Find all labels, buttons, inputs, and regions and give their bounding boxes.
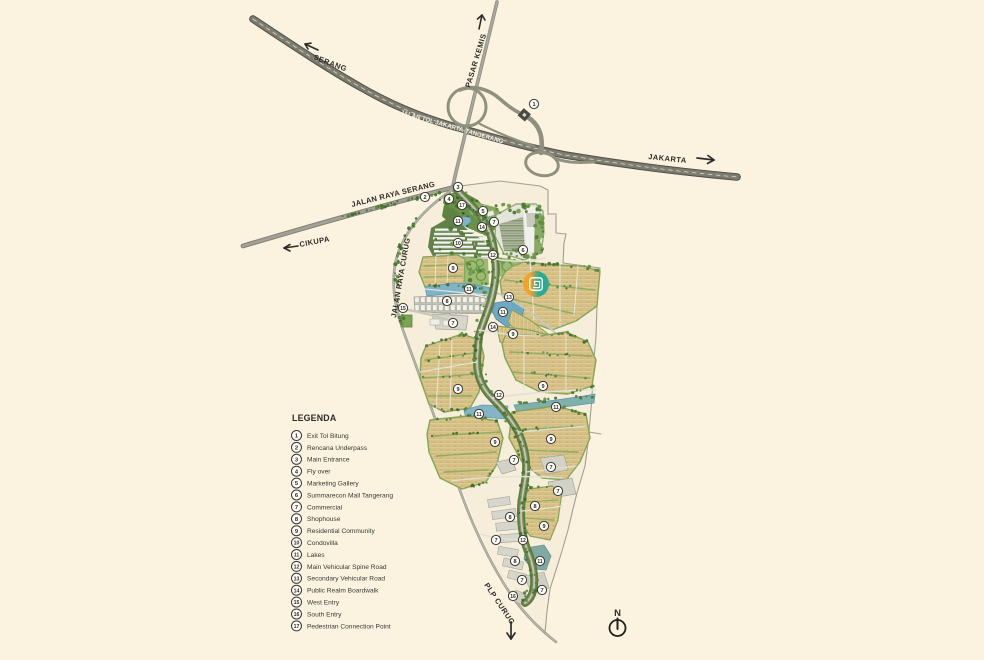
svg-text:9: 9 (493, 440, 496, 446)
svg-text:3: 3 (456, 185, 459, 191)
svg-text:13: 13 (294, 576, 300, 582)
svg-text:Rencana Underpass: Rencana Underpass (307, 445, 368, 452)
svg-text:14: 14 (479, 225, 485, 231)
svg-text:11: 11 (553, 405, 559, 411)
svg-text:7: 7 (520, 578, 523, 584)
svg-text:15: 15 (294, 600, 300, 606)
svg-text:West Entry: West Entry (307, 600, 340, 607)
svg-text:Shophouse: Shophouse (307, 516, 341, 523)
svg-text:13: 13 (506, 295, 512, 301)
svg-text:Main Entrance: Main Entrance (307, 457, 350, 464)
svg-text:Commercial: Commercial (307, 504, 343, 511)
svg-text:8: 8 (533, 504, 536, 510)
svg-text:7: 7 (295, 505, 298, 511)
svg-text:11: 11 (537, 559, 543, 565)
svg-text:7: 7 (451, 321, 454, 327)
svg-text:9: 9 (511, 332, 514, 338)
svg-text:7: 7 (492, 220, 495, 226)
svg-text:Condovilla: Condovilla (307, 540, 338, 547)
svg-text:7: 7 (512, 458, 515, 464)
svg-text:Exit Tol Bitung: Exit Tol Bitung (307, 433, 349, 440)
svg-text:9: 9 (541, 384, 544, 390)
svg-text:Main Vehicular Spine Road: Main Vehicular Spine Road (307, 564, 387, 571)
svg-text:17: 17 (294, 624, 300, 630)
svg-text:16: 16 (510, 594, 516, 600)
svg-text:9: 9 (456, 387, 459, 393)
svg-text:South Entry: South Entry (307, 611, 342, 618)
svg-text:5: 5 (481, 209, 484, 215)
svg-text:9: 9 (451, 266, 454, 272)
svg-text:15: 15 (400, 306, 406, 312)
svg-text:Residential Community: Residential Community (307, 528, 375, 535)
svg-text:7: 7 (556, 489, 559, 495)
svg-text:8: 8 (445, 299, 448, 305)
svg-text:10: 10 (455, 241, 461, 247)
svg-text:17: 17 (459, 203, 465, 209)
svg-text:14: 14 (294, 588, 300, 594)
svg-text:1: 1 (532, 102, 535, 108)
svg-text:9: 9 (549, 437, 552, 443)
svg-text:Lakes: Lakes (307, 552, 325, 559)
svg-text:2: 2 (295, 446, 298, 452)
svg-text:11: 11 (294, 553, 300, 559)
svg-text:8: 8 (508, 515, 511, 521)
svg-text:Public Realm Boardwalk: Public Realm Boardwalk (307, 588, 379, 595)
svg-text:14: 14 (490, 325, 496, 331)
svg-text:12: 12 (294, 565, 300, 571)
svg-text:12: 12 (520, 538, 526, 544)
svg-text:11: 11 (476, 412, 482, 418)
svg-text:16: 16 (294, 612, 300, 618)
svg-text:Pedestrian Connection Point: Pedestrian Connection Point (307, 623, 391, 630)
svg-text:8: 8 (513, 559, 516, 565)
svg-text:11: 11 (455, 219, 461, 225)
svg-text:12: 12 (490, 253, 496, 259)
svg-text:7: 7 (494, 538, 497, 544)
svg-text:6: 6 (521, 248, 524, 254)
svg-text:Marketing Gallery: Marketing Gallery (307, 481, 359, 488)
svg-text:12: 12 (496, 393, 502, 399)
svg-text:N: N (614, 608, 621, 619)
svg-text:11: 11 (500, 310, 506, 316)
svg-text:7: 7 (540, 588, 543, 594)
svg-text:11: 11 (466, 287, 472, 293)
svg-text:Secondary Vehicular Road: Secondary Vehicular Road (307, 576, 385, 583)
svg-text:7: 7 (549, 465, 552, 471)
svg-text:Fly over: Fly over (307, 469, 331, 476)
svg-text:10: 10 (294, 541, 300, 547)
svg-text:2: 2 (423, 195, 426, 201)
svg-text:LEGENDA: LEGENDA (292, 413, 337, 423)
svg-text:Summarecon Mall Tangerang: Summarecon Mall Tangerang (307, 492, 393, 499)
svg-text:9: 9 (542, 524, 545, 530)
